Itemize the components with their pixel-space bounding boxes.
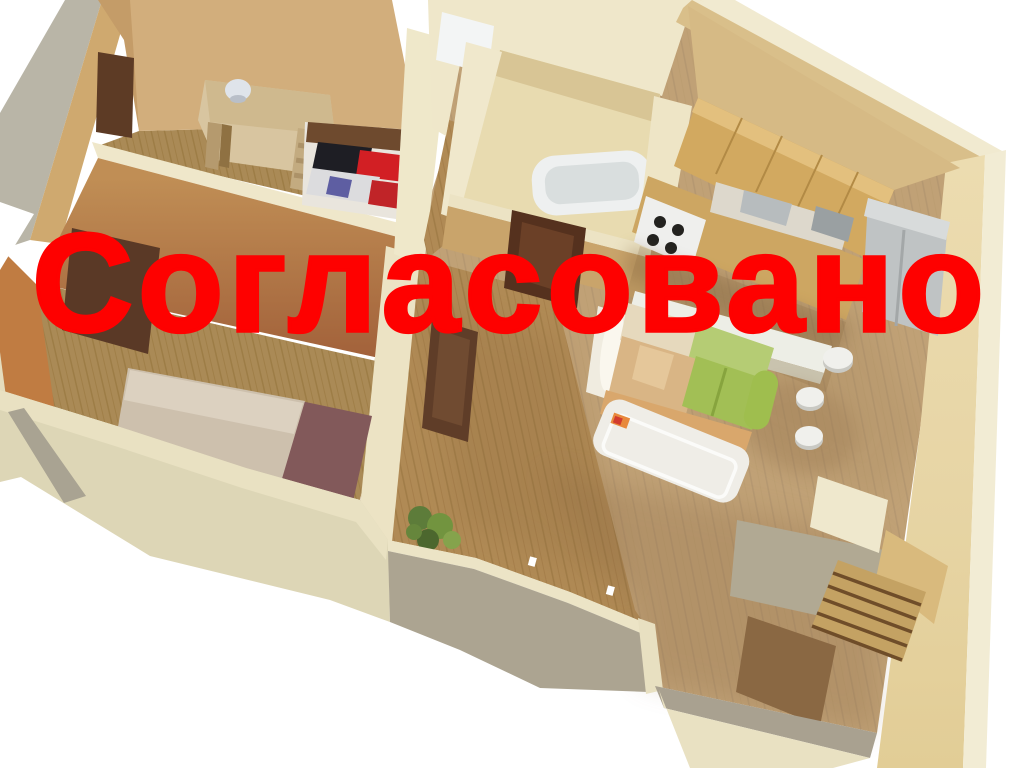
svg-text:Согласовано: Согласовано: [32, 204, 984, 361]
